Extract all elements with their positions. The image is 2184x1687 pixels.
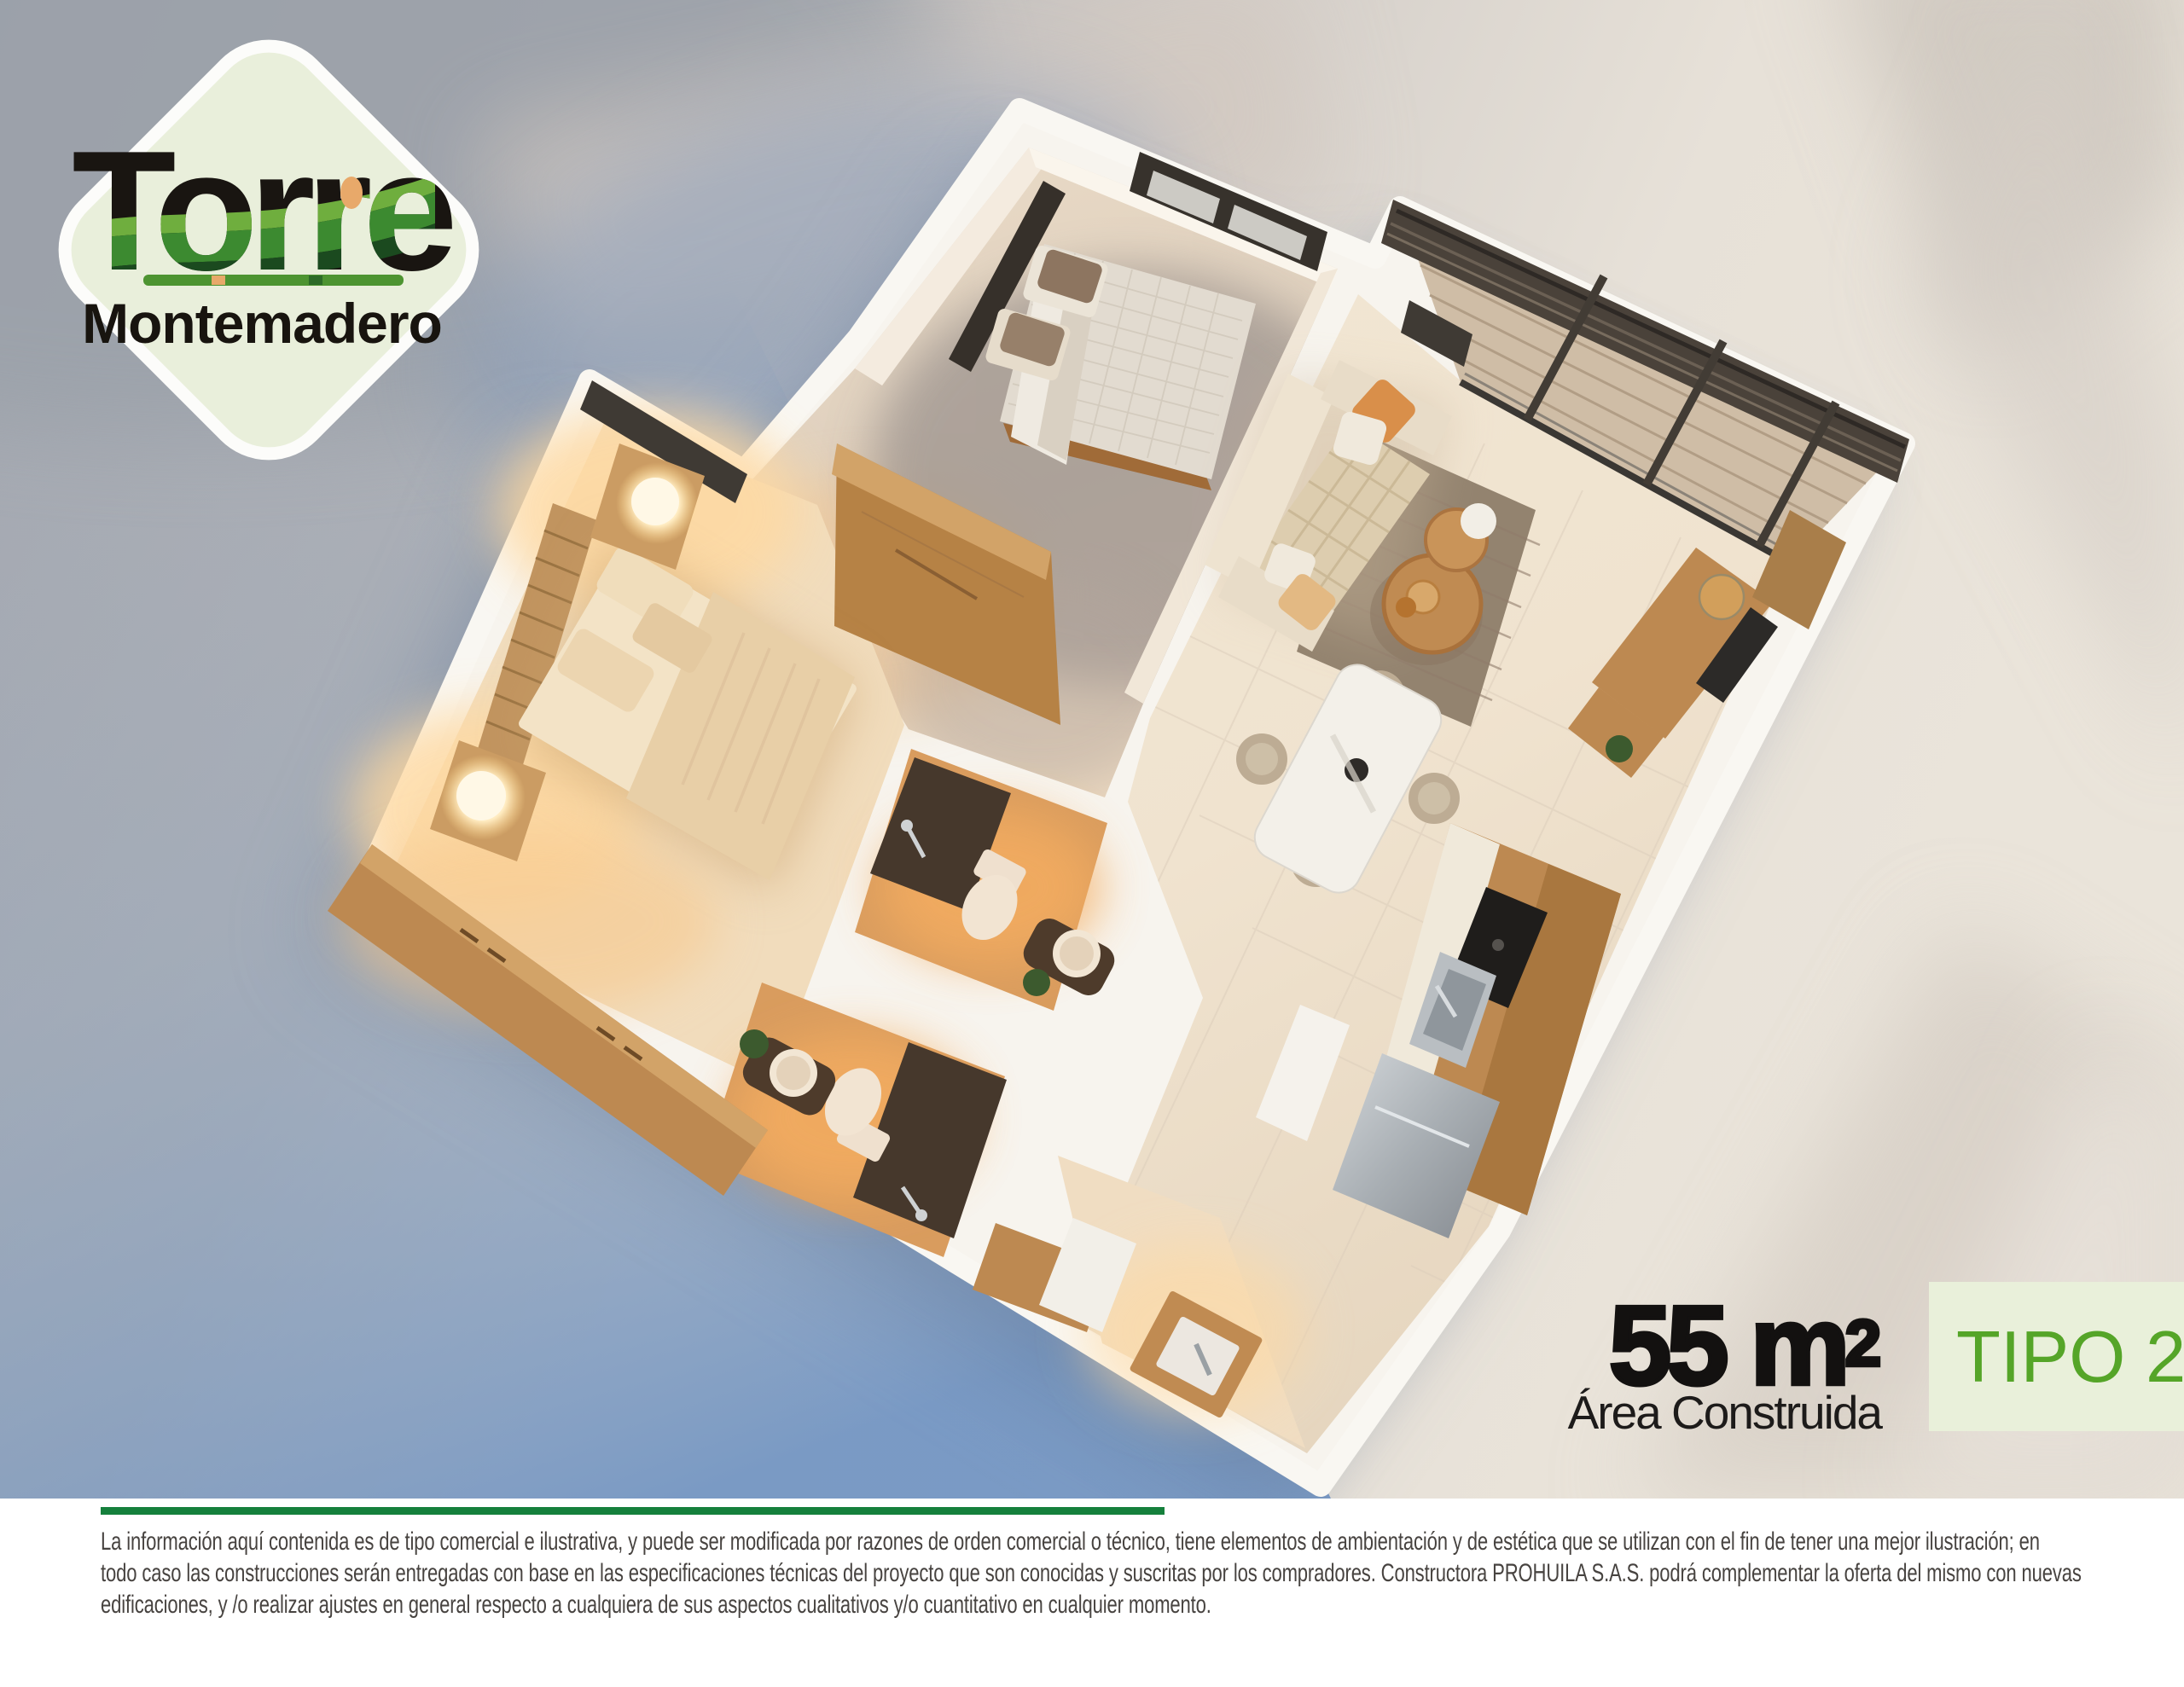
svg-text:Montemadero: Montemadero <box>82 292 442 355</box>
